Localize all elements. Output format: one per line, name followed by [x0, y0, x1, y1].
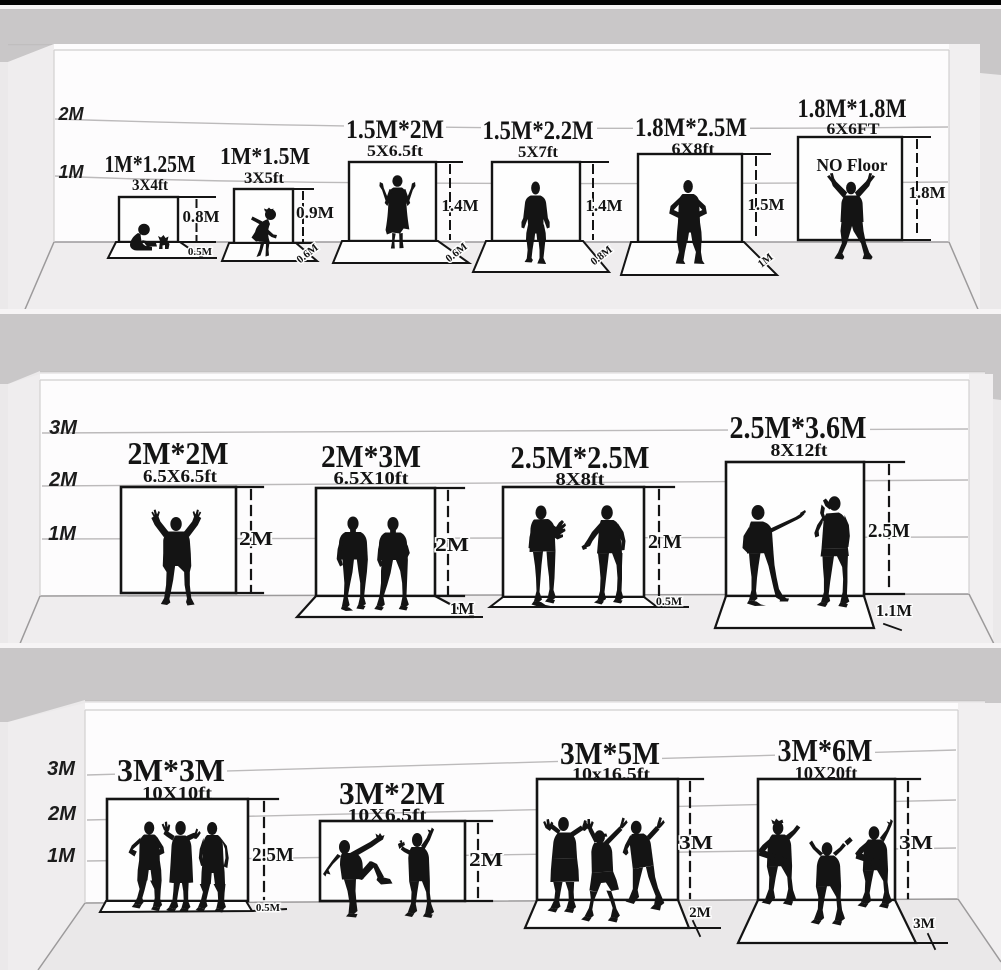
svg-text:1M: 1M	[47, 845, 76, 867]
svg-text:5X7ft: 5X7ft	[518, 144, 559, 161]
svg-text:2.5M: 2.5M	[252, 844, 294, 866]
svg-text:1.1M: 1.1M	[876, 601, 912, 620]
svg-text:1.4M: 1.4M	[442, 196, 479, 215]
svg-text:1M: 1M	[450, 599, 475, 618]
svg-text:1.5M*2.2M: 1.5M*2.2M	[483, 116, 594, 145]
svg-text:2M: 2M	[435, 534, 469, 556]
svg-text:0.5M: 0.5M	[656, 594, 682, 608]
svg-text:3M: 3M	[49, 417, 78, 439]
svg-text:2M: 2M	[57, 104, 84, 124]
svg-text:3M: 3M	[679, 832, 713, 854]
svg-text:1.8M*2.5M: 1.8M*2.5M	[635, 113, 747, 142]
svg-text:6.5X10ft: 6.5X10ft	[334, 468, 409, 488]
svg-text:0.8M: 0.8M	[183, 207, 220, 226]
svg-text:1M: 1M	[48, 523, 77, 545]
svg-text:6.5X6.5ft: 6.5X6.5ft	[143, 466, 217, 486]
svg-text:3X5ft: 3X5ft	[244, 170, 285, 187]
svg-text:1.5M: 1.5M	[748, 195, 785, 214]
svg-text:NO Floor: NO Floor	[817, 155, 888, 175]
svg-text:1.8M: 1.8M	[909, 183, 946, 202]
svg-text:1M: 1M	[58, 162, 84, 182]
svg-text:2M: 2M	[689, 905, 711, 921]
svg-text:3M: 3M	[899, 832, 933, 854]
svg-text:1.5M*2M: 1.5M*2M	[346, 115, 444, 144]
svg-text:2 M: 2 M	[648, 531, 682, 553]
svg-text:6X6FT: 6X6FT	[827, 121, 880, 138]
svg-text:0.5M: 0.5M	[188, 246, 213, 258]
svg-text:0.9M: 0.9M	[296, 203, 334, 222]
svg-text:2M: 2M	[469, 849, 503, 871]
svg-text:8X12ft: 8X12ft	[771, 440, 828, 460]
svg-text:1.8M*1.8M: 1.8M*1.8M	[798, 94, 907, 123]
svg-text:3M: 3M	[47, 758, 76, 780]
svg-text:3M: 3M	[913, 916, 935, 932]
svg-text:0.5M: 0.5M	[256, 902, 281, 914]
svg-text:1.4M: 1.4M	[586, 196, 623, 215]
svg-text:2M: 2M	[239, 528, 273, 550]
svg-text:2M: 2M	[47, 803, 77, 825]
svg-text:1M*1.25M: 1M*1.25M	[105, 152, 196, 178]
svg-text:3X4ft: 3X4ft	[132, 177, 169, 194]
svg-text:2M: 2M	[48, 469, 78, 491]
svg-text:2.5M: 2.5M	[868, 520, 910, 542]
svg-text:5X6.5ft: 5X6.5ft	[367, 143, 424, 160]
svg-text:1M*1.5M: 1M*1.5M	[220, 144, 310, 170]
